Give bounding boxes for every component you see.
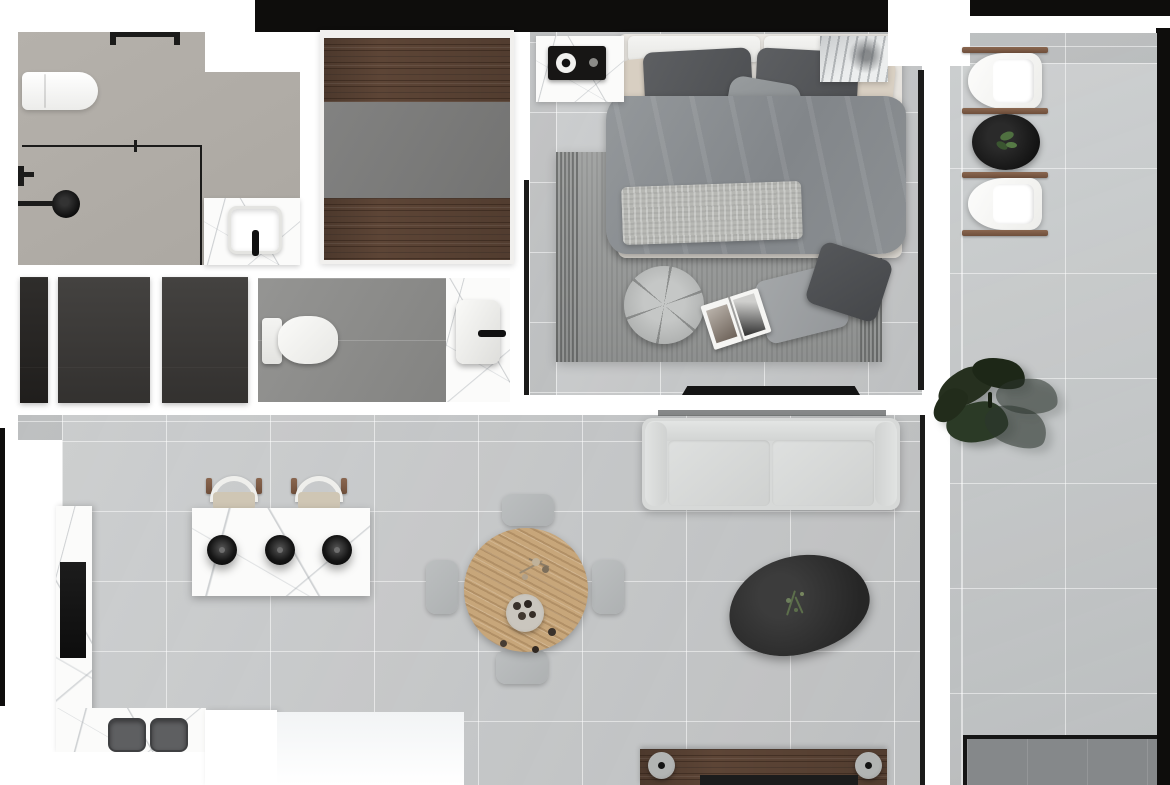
coffee-table-sprig (782, 588, 812, 622)
loose-fruit (500, 640, 507, 647)
wall-top (255, 0, 890, 32)
pendant-lamp-2 (265, 535, 295, 565)
nightstand-radio (548, 46, 606, 80)
dried-flowers (508, 552, 564, 594)
stool-post (341, 478, 347, 494)
kitchen-sink-left (108, 718, 146, 752)
sofa-arm-left (645, 422, 667, 506)
loose-fruit (548, 628, 556, 636)
bottom-soft-band (277, 712, 464, 785)
bench-bolster-right (855, 752, 882, 779)
shower-head (52, 190, 80, 218)
bottom-wall-pier (205, 710, 277, 785)
wardrobe-upper-shelf (324, 38, 510, 102)
shower-screen-vertical (200, 145, 202, 265)
wall-right (1156, 28, 1170, 785)
lounge-chair-top (968, 53, 1042, 109)
shower-arm (18, 201, 54, 206)
door-jamb-right (174, 32, 180, 45)
lounge-chair-bottom (968, 178, 1042, 230)
sofa-arm-right (875, 422, 897, 506)
dining-chair-right (592, 560, 624, 614)
wc-toilet-bowl (278, 316, 338, 364)
toilet-seam (44, 74, 46, 108)
sofa-seat-right (772, 440, 874, 506)
kitchen-cooktop (60, 562, 86, 658)
balcony-side-table (972, 114, 1040, 170)
bathroom-faucet (252, 230, 259, 256)
dining-chair-left (426, 560, 458, 614)
storage-panel-left (58, 277, 150, 403)
wardrobe-lower-shelf (324, 198, 510, 260)
bathroom-door-opening (205, 32, 300, 72)
fruit-bowl (506, 594, 544, 632)
wall-top-right (968, 0, 1170, 16)
nightstand-right (820, 36, 888, 82)
wall-ledge-above-sofa (658, 410, 886, 416)
balcony-outdoor-mat (963, 735, 1157, 785)
kitchen-sink-right (150, 718, 188, 752)
door-threshold (110, 32, 180, 37)
bedroom-window-line (918, 70, 924, 390)
door-jamb-left (110, 32, 116, 45)
living-window-line (920, 415, 925, 785)
bedroom-pouf (624, 266, 704, 344)
storage-panel-narrow (20, 277, 48, 403)
storage-panel-right (162, 277, 248, 403)
shower-screen-horizontal (22, 145, 202, 147)
living-sofa (642, 418, 900, 510)
balcony-plant (930, 358, 1066, 454)
wc-faucet (478, 330, 506, 337)
rug-fringe-left (556, 152, 578, 362)
bar-stool-1 (206, 476, 262, 510)
shower-mixer-handle (24, 172, 34, 177)
shower-screen-tick (134, 140, 137, 152)
stool-post (256, 478, 262, 494)
radio-knob (589, 58, 598, 67)
bedroom-wall-line (524, 180, 529, 395)
bench-bolster-left (648, 752, 675, 779)
bathroom-toilet (22, 72, 98, 110)
pendant-lamp-3 (322, 535, 352, 565)
radio-speaker (556, 53, 576, 73)
wall-pier-top (888, 0, 970, 66)
bench-inset (700, 775, 858, 785)
pendant-lamp-1 (207, 535, 237, 565)
wardrobe-interior (324, 102, 510, 198)
dining-chair-top (502, 494, 554, 526)
apartment-floor-plan (0, 0, 1170, 785)
kitchen-left-wall-band (5, 440, 62, 785)
loose-fruit (532, 646, 539, 653)
bar-stool-2 (291, 476, 347, 510)
bed-throw (621, 181, 803, 245)
sofa-back (646, 421, 896, 441)
sofa-seat-left (668, 440, 770, 506)
bedroom-tv (682, 386, 860, 395)
chair-rail (962, 230, 1048, 236)
dining-chair-bottom (496, 650, 548, 684)
